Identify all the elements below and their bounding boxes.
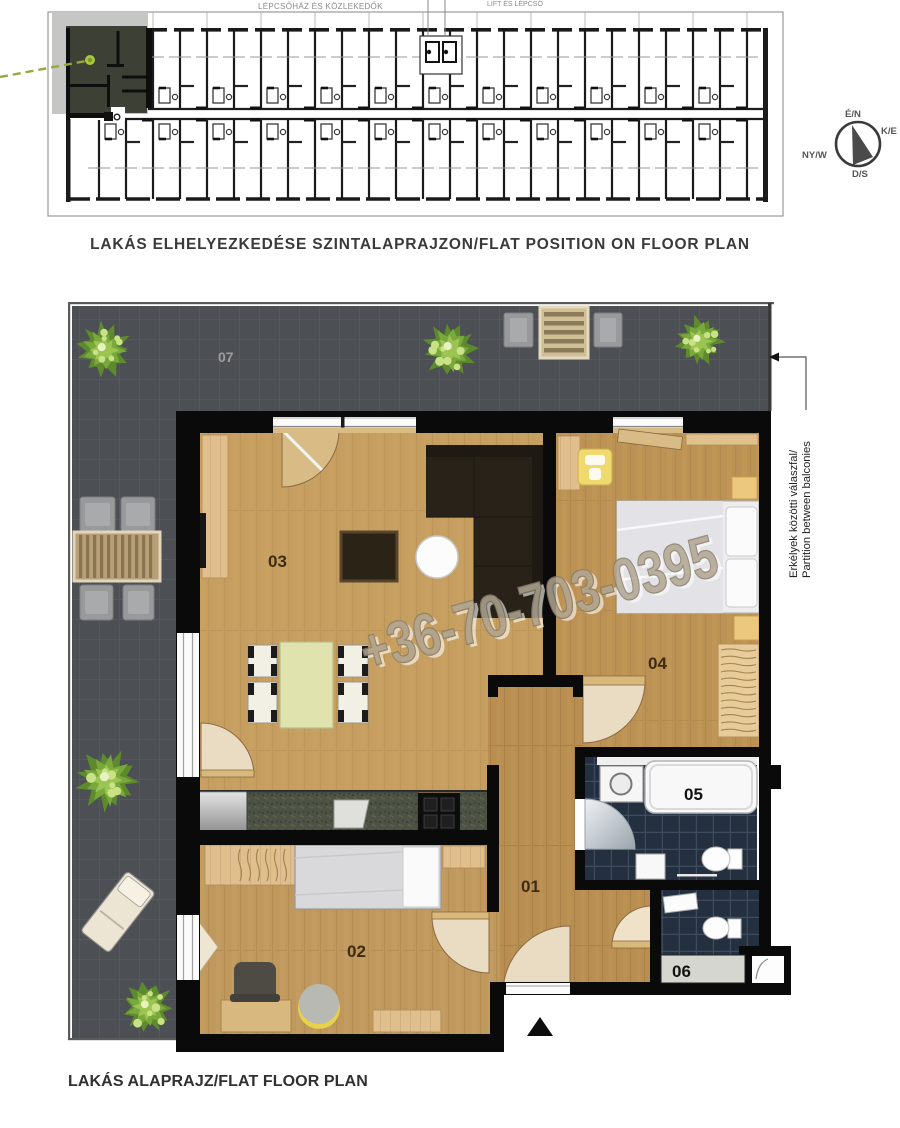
svg-text:03: 03 bbox=[268, 552, 287, 571]
svg-text:É/N: É/N bbox=[845, 109, 861, 120]
svg-text:Erkélyek közötti válaszfal/: Erkélyek közötti válaszfal/ bbox=[788, 449, 800, 578]
svg-text:04: 04 bbox=[648, 654, 667, 673]
svg-text:06: 06 bbox=[672, 962, 691, 981]
svg-text:Partition between balconies: Partition between balconies bbox=[801, 441, 813, 578]
svg-text:07: 07 bbox=[218, 349, 234, 365]
svg-text:LIFT ÉS LÉPCSŐ: LIFT ÉS LÉPCSŐ bbox=[487, 0, 543, 8]
svg-text:02: 02 bbox=[347, 942, 366, 961]
svg-text:NY/W: NY/W bbox=[802, 150, 827, 161]
svg-text:LÉPCSŐHÁZ ÉS KÖZLEKEDŐK: LÉPCSŐHÁZ ÉS KÖZLEKEDŐK bbox=[258, 2, 383, 11]
svg-text:01: 01 bbox=[521, 877, 540, 896]
svg-text:D/S: D/S bbox=[852, 169, 868, 180]
svg-text:K/E: K/E bbox=[881, 126, 897, 137]
svg-text:LAKÁS ALAPRAJZ/FLAT FLOOR PLAN: LAKÁS ALAPRAJZ/FLAT FLOOR PLAN bbox=[68, 1071, 368, 1090]
svg-text:LAKÁS ELHELYEZKEDÉSE SZINTALAP: LAKÁS ELHELYEZKEDÉSE SZINTALAPRAJZON/FLA… bbox=[90, 236, 750, 253]
svg-text:05: 05 bbox=[684, 785, 703, 804]
